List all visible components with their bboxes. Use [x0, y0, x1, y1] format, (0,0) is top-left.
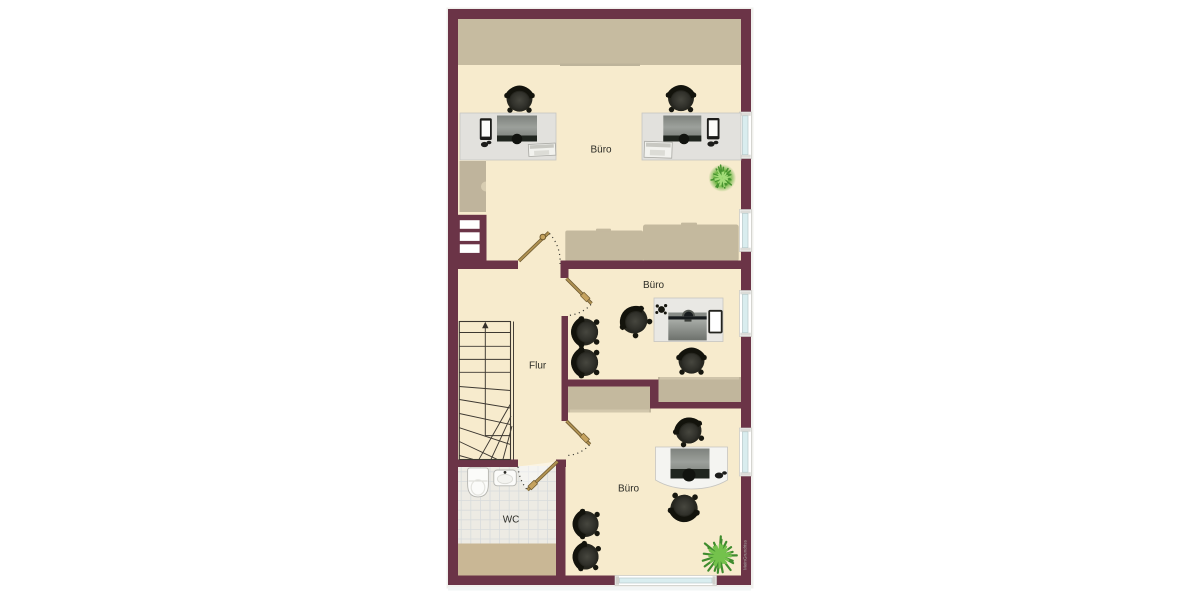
svg-text:Büro: Büro [618, 483, 640, 494]
svg-text:WC: WC [503, 515, 520, 526]
svg-text:MeinGrundriss: MeinGrundriss [743, 539, 748, 570]
svg-text:Büro: Büro [643, 280, 665, 291]
svg-text:Flur: Flur [529, 360, 547, 371]
svg-text:Büro: Büro [591, 145, 613, 156]
